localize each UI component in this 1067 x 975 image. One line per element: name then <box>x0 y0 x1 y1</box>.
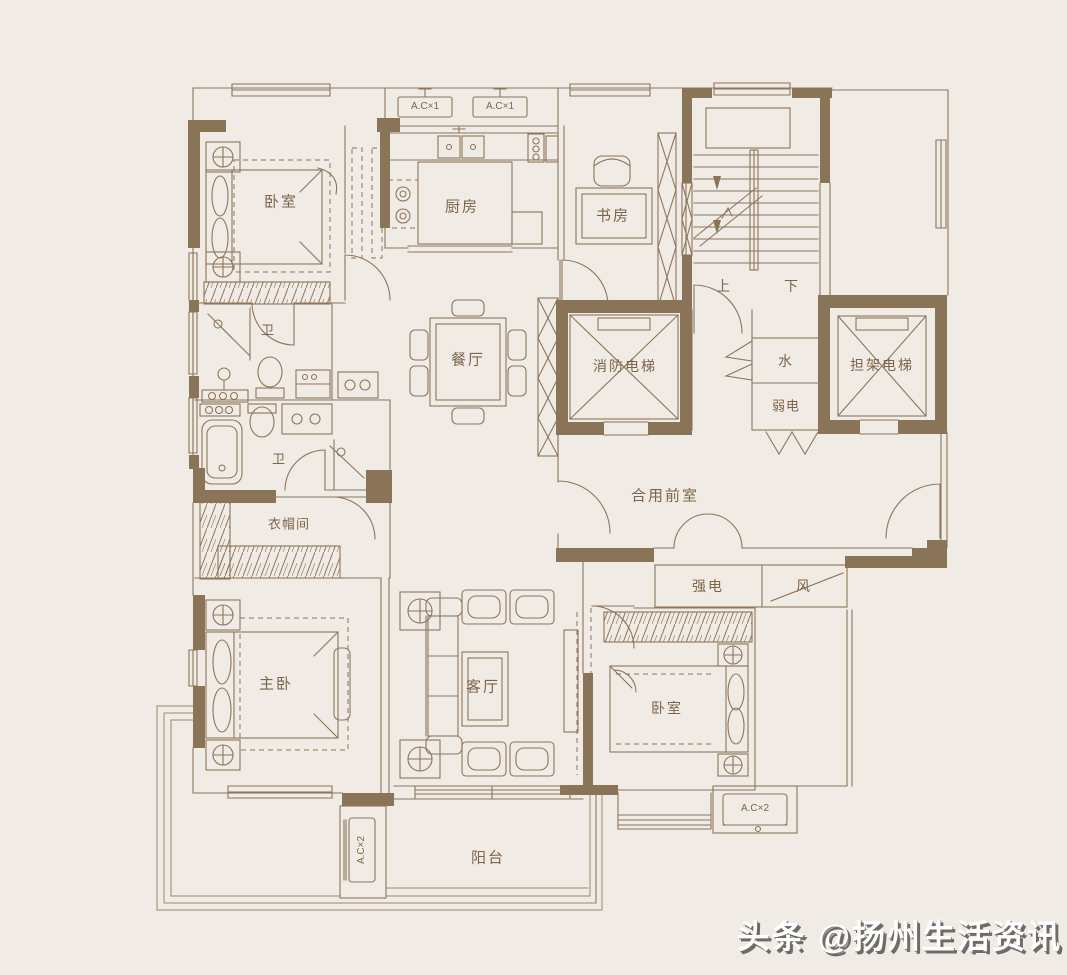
room-label-strong-power: 强电 <box>692 579 724 593</box>
stairwell <box>682 108 818 333</box>
ac-label-bedroom-br: A.C×2 <box>741 804 769 814</box>
kitchen-fixtures <box>388 126 558 244</box>
floorplan-drawing <box>0 0 1067 975</box>
room-label-cloakroom: 衣帽间 <box>268 518 310 531</box>
room-label-bath-upper: 卫 <box>261 324 275 337</box>
room-label-bath-lower: 卫 <box>272 453 286 466</box>
room-label-master-bedroom: 主卧 <box>259 677 293 692</box>
bath-upper-fixtures <box>202 308 378 402</box>
strong-power-vent-shafts <box>655 565 847 607</box>
room-label-balcony: 阳台 <box>471 851 505 866</box>
room-label-kitchen: 厨房 <box>445 200 479 215</box>
thick-walls <box>188 88 947 806</box>
ac-label-top-right: A.C×1 <box>486 102 514 112</box>
room-label-vent-shaft: 风 <box>796 579 812 593</box>
room-label-fire-elevator: 消防电梯 <box>593 359 657 373</box>
floorplan-page: 卧室 厨房 书房 卫 卫 餐厅 消防电梯 水 弱电 担架电梯 上 下 合用前室 … <box>0 0 1067 975</box>
room-label-water-shaft: 水 <box>778 354 794 368</box>
watermark: 头条 @扬州生活资讯 <box>737 910 1062 958</box>
cloakroom-wardrobes <box>200 499 340 579</box>
doors <box>252 255 940 648</box>
label-stairs-down: 下 <box>784 279 800 293</box>
bedroom-tl-furniture <box>204 142 337 304</box>
ac-label-top-left: A.C×1 <box>411 102 439 112</box>
room-label-study: 书房 <box>596 209 630 224</box>
duct-shaft-left <box>538 298 558 456</box>
label-stairs-up: 上 <box>716 279 732 293</box>
room-label-dining: 餐厅 <box>451 353 485 368</box>
hall-risers <box>352 148 382 258</box>
study-furniture <box>576 156 652 244</box>
room-label-bedroom-br: 卧室 <box>651 701 683 715</box>
ac-label-balcony: A.C×2 <box>357 836 367 864</box>
bath-lower-fixtures <box>200 404 364 490</box>
room-label-living-room: 客厅 <box>466 680 500 695</box>
room-label-shared-lobby: 合用前室 <box>631 489 699 504</box>
room-label-stretcher-elevator: 担架电梯 <box>850 358 914 372</box>
duct-shaft-study <box>658 133 676 307</box>
water-weak-power-shafts <box>726 338 820 454</box>
room-label-weak-power: 弱电 <box>772 400 800 413</box>
windows <box>189 83 946 829</box>
room-label-bedroom-tl: 卧室 <box>264 195 298 210</box>
fire-elevator <box>570 315 678 435</box>
stretcher-elevator <box>838 316 926 434</box>
bedroom-br-furniture <box>604 612 752 776</box>
